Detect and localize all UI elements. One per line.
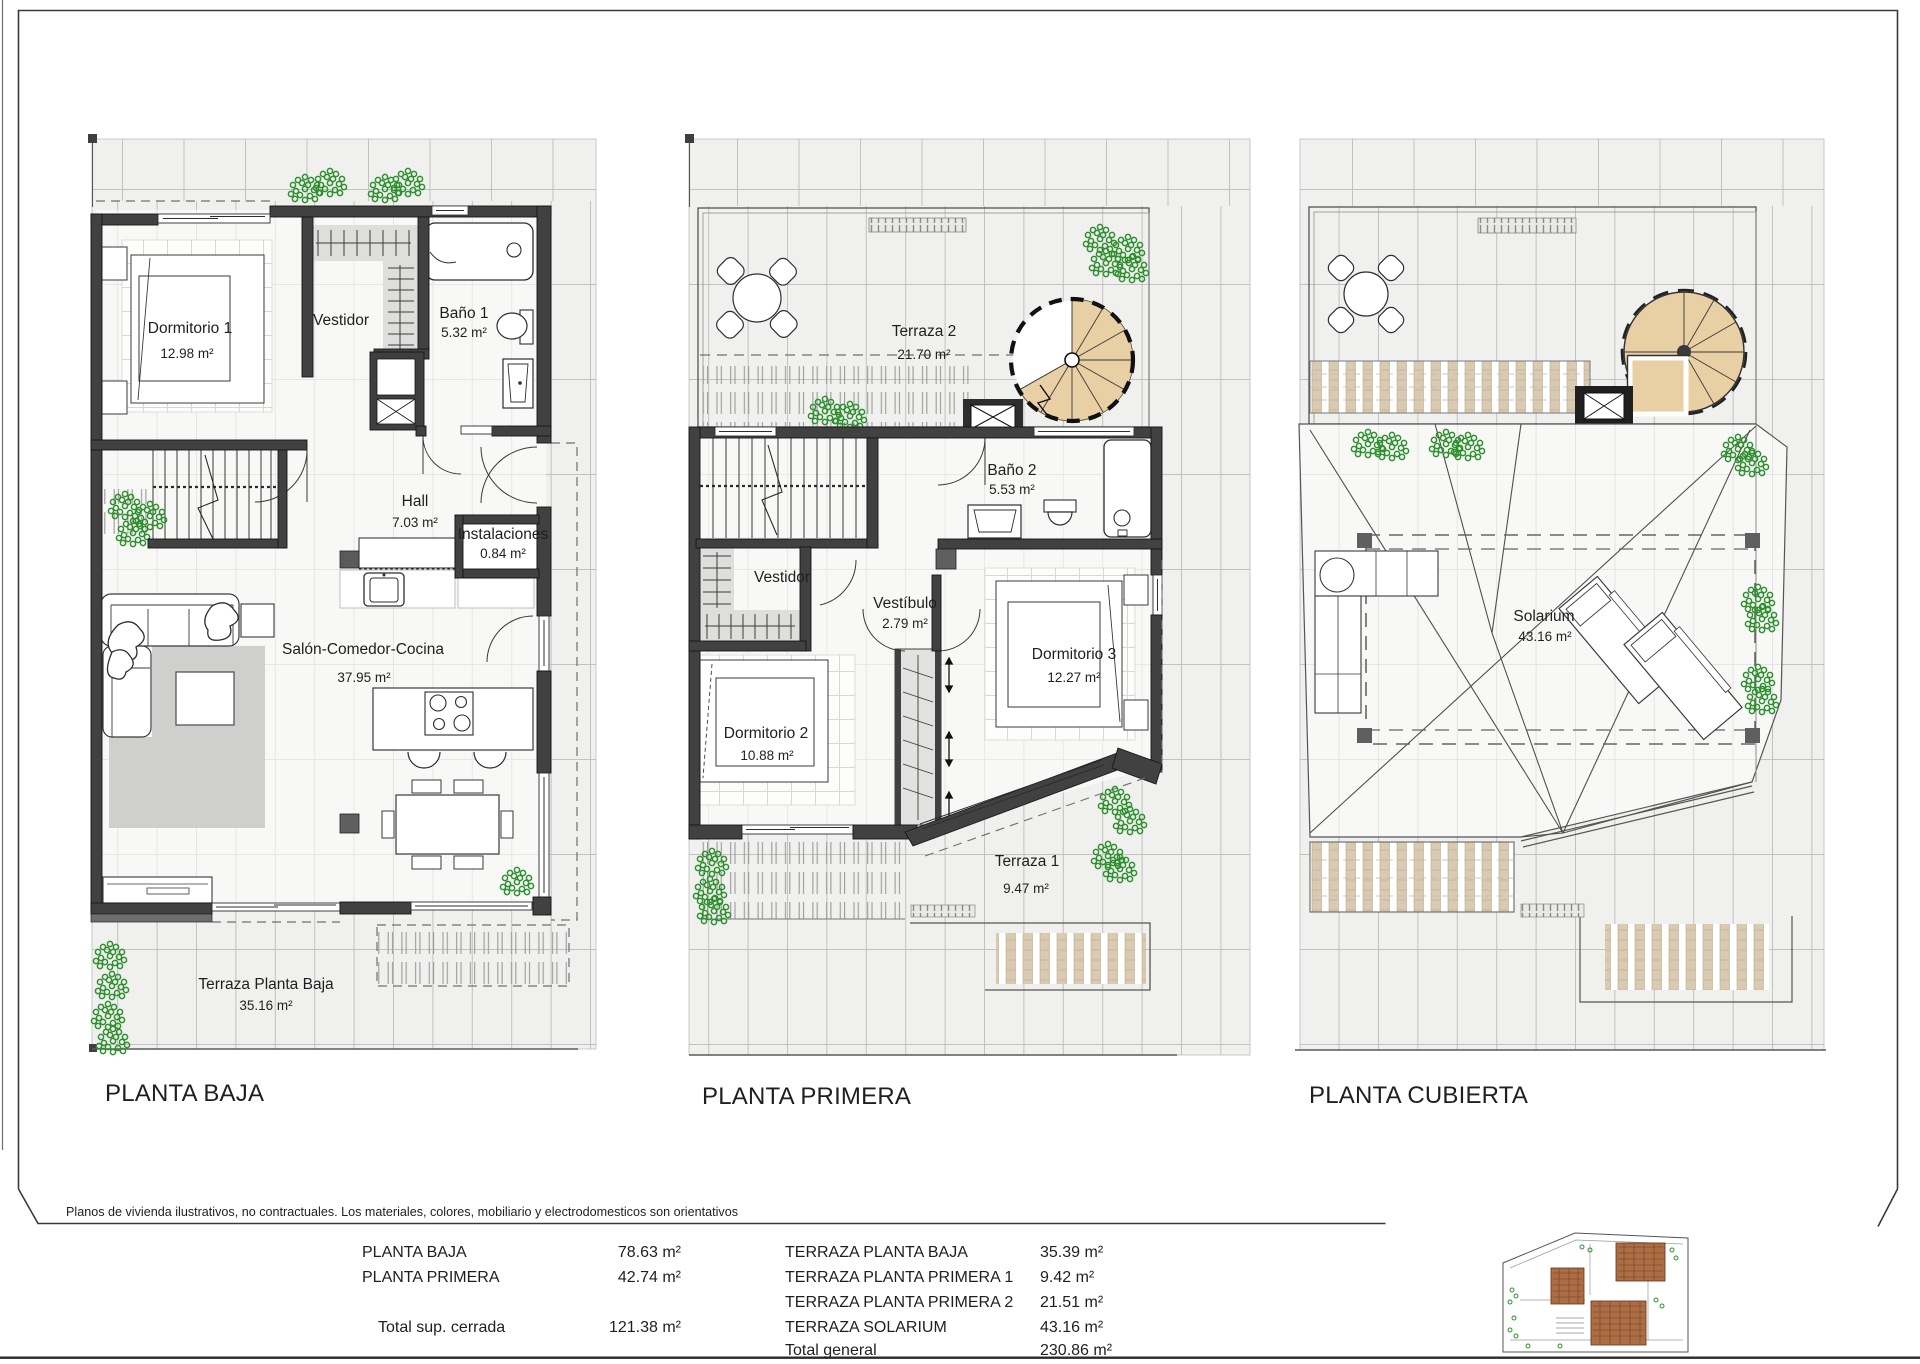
svg-text:21.70 m²: 21.70 m² — [897, 347, 951, 362]
svg-text:Vestíbulo: Vestíbulo — [873, 595, 937, 612]
svg-text:12.27 m²: 12.27 m² — [1047, 670, 1101, 685]
svg-text:0.84 m²: 0.84 m² — [480, 546, 526, 561]
svg-text:PLANTA BAJA: PLANTA BAJA — [362, 1244, 467, 1261]
svg-text:Instalaciones: Instalaciones — [458, 526, 549, 543]
svg-text:2.79 m²: 2.79 m² — [882, 616, 928, 631]
svg-text:Salón-Comedor-Cocina: Salón-Comedor-Cocina — [282, 641, 444, 658]
svg-text:78.63 m²: 78.63 m² — [618, 1244, 682, 1261]
svg-text:Dormitorio 2: Dormitorio 2 — [724, 725, 808, 742]
svg-text:5.53 m²: 5.53 m² — [989, 482, 1035, 497]
svg-text:121.38 m²: 121.38 m² — [609, 1319, 682, 1336]
svg-text:Terraza 2: Terraza 2 — [892, 323, 957, 340]
svg-text:12.98 m²: 12.98 m² — [160, 346, 214, 361]
svg-text:Hall: Hall — [402, 493, 429, 510]
svg-text:21.51 m²: 21.51 m² — [1040, 1294, 1104, 1311]
svg-text:PLANTA PRIMERA: PLANTA PRIMERA — [702, 1083, 911, 1110]
svg-text:230.86 m²: 230.86 m² — [1040, 1342, 1113, 1359]
svg-text:Total general: Total general — [785, 1342, 877, 1359]
svg-text:5.32 m²: 5.32 m² — [441, 325, 487, 340]
svg-text:TERRAZA SOLARIUM: TERRAZA SOLARIUM — [785, 1319, 947, 1336]
svg-text:37.95 m²: 37.95 m² — [337, 670, 391, 685]
svg-text:9.47 m²: 9.47 m² — [1003, 881, 1049, 896]
svg-text:Vestidor: Vestidor — [313, 312, 369, 329]
svg-text:10.88 m²: 10.88 m² — [740, 748, 794, 763]
svg-text:Solarium: Solarium — [1513, 608, 1574, 625]
svg-text:Terraza Planta Baja: Terraza Planta Baja — [198, 976, 334, 993]
svg-text:Total sup. cerrada: Total sup. cerrada — [378, 1319, 505, 1336]
svg-text:7.03 m²: 7.03 m² — [392, 515, 438, 530]
svg-text:Dormitorio 3: Dormitorio 3 — [1032, 646, 1116, 663]
svg-text:TERRAZA PLANTA PRIMERA 2: TERRAZA PLANTA PRIMERA 2 — [785, 1294, 1013, 1311]
svg-text:Vestidor: Vestidor — [754, 569, 810, 586]
svg-text:TERRAZA PLANTA PRIMERA 1: TERRAZA PLANTA PRIMERA 1 — [785, 1269, 1013, 1286]
svg-text:9.42 m²: 9.42 m² — [1040, 1269, 1095, 1286]
svg-text:PLANTA PRIMERA: PLANTA PRIMERA — [362, 1269, 500, 1286]
svg-text:Dormitorio 1: Dormitorio 1 — [148, 320, 232, 337]
svg-text:35.39 m²: 35.39 m² — [1040, 1244, 1104, 1261]
svg-text:TERRAZA PLANTA BAJA: TERRAZA PLANTA BAJA — [785, 1244, 968, 1261]
svg-text:PLANTA BAJA: PLANTA BAJA — [105, 1080, 264, 1107]
svg-text:43.16 m²: 43.16 m² — [1518, 629, 1572, 644]
svg-text:43.16 m²: 43.16 m² — [1040, 1319, 1104, 1336]
svg-text:Planos de vivienda ilustrativo: Planos de vivienda ilustrativos, no cont… — [66, 1205, 738, 1219]
svg-text:Baño 1: Baño 1 — [439, 305, 488, 322]
svg-text:Baño 2: Baño 2 — [987, 462, 1036, 479]
svg-text:42.74 m²: 42.74 m² — [618, 1269, 682, 1286]
svg-text:Terraza 1: Terraza 1 — [995, 853, 1060, 870]
svg-text:35.16 m²: 35.16 m² — [239, 998, 293, 1013]
svg-text:PLANTA CUBIERTA: PLANTA CUBIERTA — [1309, 1082, 1528, 1109]
